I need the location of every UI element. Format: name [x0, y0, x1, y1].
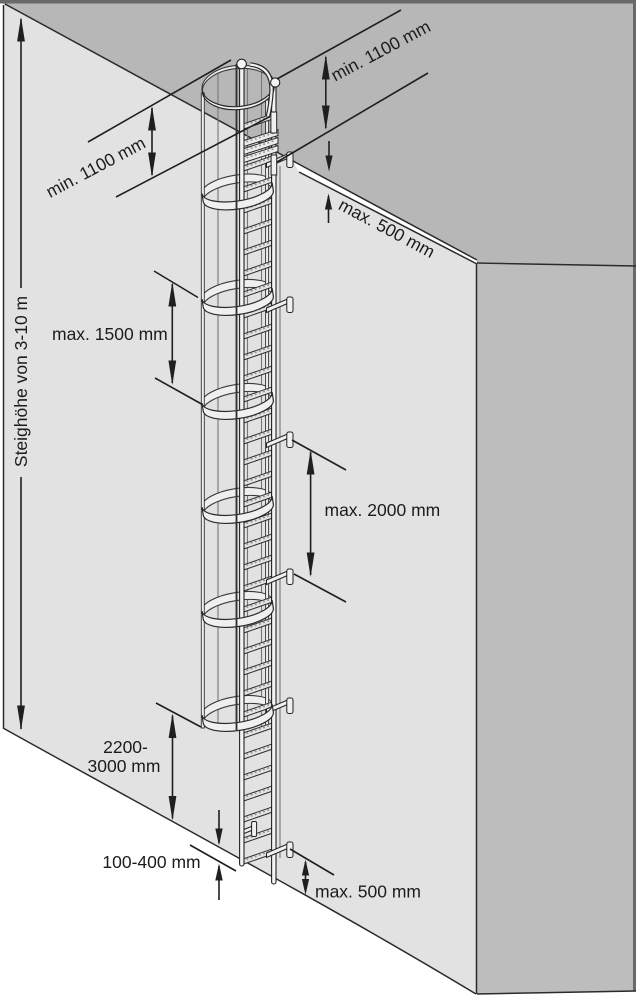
svg-text:100-400 mm: 100-400 mm [102, 852, 200, 872]
svg-text:2200-: 2200- [103, 737, 148, 757]
svg-text:max. 2000 mm: max. 2000 mm [325, 500, 441, 520]
svg-text:max. 1500 mm: max. 1500 mm [52, 324, 168, 344]
svg-text:max. 500 mm: max. 500 mm [315, 882, 421, 902]
svg-text:3000 mm: 3000 mm [88, 756, 161, 776]
svg-text:Steighöhe von 3-10 m: Steighöhe von 3-10 m [11, 296, 31, 467]
